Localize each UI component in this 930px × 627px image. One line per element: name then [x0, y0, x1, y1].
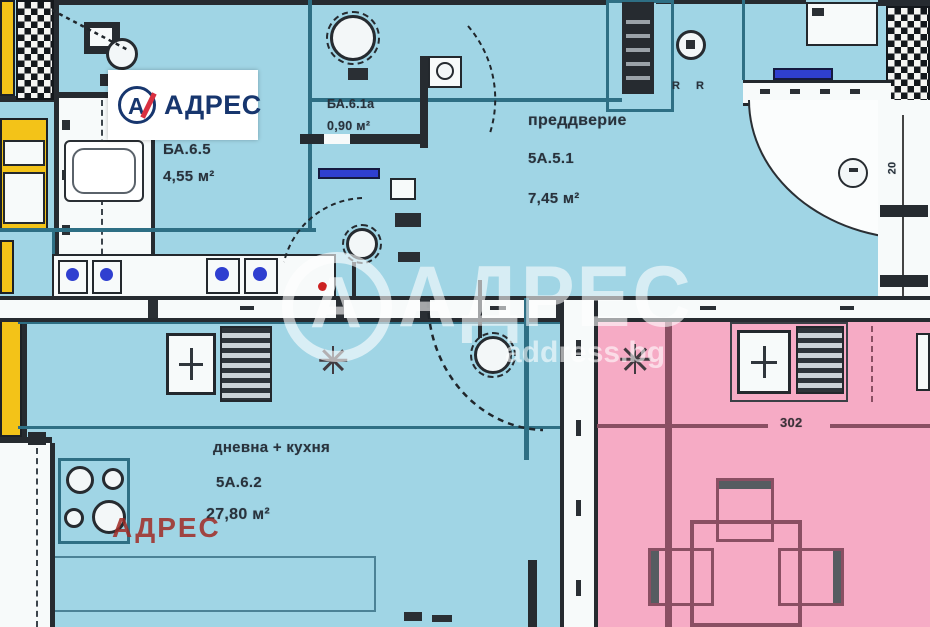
watermark-stamp: АДРЕС — [112, 512, 221, 544]
window-glass — [318, 168, 380, 179]
ceiling-light — [106, 38, 138, 70]
room-area: 4,55 м² — [163, 168, 215, 185]
dim-mark — [62, 120, 70, 130]
watermark-site: address.bg — [505, 336, 665, 370]
door-jamb — [148, 300, 158, 318]
outlet-label: R — [696, 80, 704, 92]
dim-mark — [700, 306, 716, 310]
partition-line — [0, 228, 316, 232]
wall — [300, 134, 428, 144]
floorplan-canvas: R R 20 — [0, 0, 930, 627]
room-code: 5А.5.1 — [528, 150, 574, 167]
floor-yellow-1 — [0, 0, 15, 96]
wall — [54, 0, 310, 5]
dim-label: 302 — [780, 415, 803, 430]
dim-mark — [404, 612, 422, 621]
washbasin-bowl — [66, 268, 79, 281]
cooktop-burner — [64, 508, 84, 528]
duct-slits — [626, 10, 650, 82]
window-glass — [773, 68, 833, 80]
rug-outline — [20, 556, 376, 612]
dim-mark — [790, 89, 800, 94]
floor-yellow-3 — [0, 240, 14, 294]
column-hatched-topright — [886, 6, 930, 106]
dim-mark — [576, 580, 581, 596]
room-code: БА.6.1а — [327, 97, 374, 111]
shower-drain-fan — [330, 15, 376, 61]
wall-stub — [528, 560, 537, 627]
fixture-mark — [348, 68, 368, 80]
wall — [300, 0, 426, 5]
axis-dashed-line — [36, 448, 38, 627]
cooktop-burner — [102, 468, 124, 490]
fixture-mark — [686, 40, 695, 49]
wall-stub — [28, 432, 46, 445]
wall — [420, 0, 606, 5]
wall — [50, 443, 55, 627]
chair-back — [719, 481, 771, 489]
dim-mark — [432, 615, 452, 622]
washbasin-bowl — [215, 267, 229, 281]
dim-mark — [576, 420, 581, 436]
door-leaf — [390, 178, 416, 200]
room-name: дневна + кухня — [213, 439, 330, 456]
yellow-fixture-1 — [3, 140, 45, 166]
partition-line — [18, 426, 563, 429]
wall — [420, 56, 428, 148]
door-jamb — [880, 275, 928, 287]
outlet-label: R — [672, 80, 680, 92]
door-jamb — [880, 205, 928, 217]
dim-mark — [760, 89, 770, 94]
fixture-mark — [812, 8, 824, 16]
chair — [716, 478, 774, 542]
kitchen-counter-stove — [796, 326, 844, 394]
dim-mark — [820, 89, 830, 94]
washbasin-bowl — [253, 267, 267, 281]
partition-line — [597, 424, 930, 428]
kitchen-counter-stove — [220, 326, 272, 402]
partition-line — [308, 0, 312, 232]
door-gap — [324, 134, 350, 144]
floor-yellow-4 — [0, 320, 22, 437]
room-area: 7,45 м² — [528, 190, 580, 207]
door-symbol-badge — [838, 158, 868, 188]
fixture-edge — [916, 333, 930, 391]
fridge — [737, 330, 791, 394]
partition-line — [742, 0, 745, 80]
bathtub-inner — [72, 148, 136, 194]
watermark-text: АДРЕС — [398, 248, 693, 347]
chair-back — [651, 551, 659, 603]
dim-mark — [240, 306, 254, 310]
column-hatched-topleft — [16, 0, 54, 100]
room-name: преддверие — [528, 112, 627, 130]
yellow-fixture-2 — [3, 172, 45, 224]
wall — [656, 0, 806, 4]
room-area: 0,90 м² — [327, 119, 370, 133]
cooktop-burner — [66, 466, 94, 494]
sink-basin — [436, 62, 454, 80]
room-code: БА.6.5 — [163, 141, 211, 158]
fixture-mark — [395, 213, 421, 227]
dim-label: 20 — [886, 162, 898, 175]
fixture-mark — [849, 168, 858, 172]
wall — [22, 320, 27, 437]
agency-logo-text: АДРЕС — [164, 90, 262, 121]
chair-back — [833, 551, 841, 603]
wall — [878, 0, 930, 6]
balcony-strip — [0, 437, 52, 627]
dim-mark — [576, 500, 581, 516]
fridge — [166, 333, 216, 395]
sliding-door-dashed — [871, 326, 873, 402]
chair — [648, 548, 714, 606]
agency-logo-box: А АДРЕС — [108, 70, 258, 140]
partition-line — [52, 230, 55, 256]
dim-mark — [850, 89, 860, 94]
chair — [778, 548, 844, 606]
watermark-monogram: А — [310, 262, 362, 344]
dim-mark — [840, 306, 854, 310]
room-code: 5А.6.2 — [216, 474, 262, 491]
washbasin-bowl — [100, 268, 113, 281]
